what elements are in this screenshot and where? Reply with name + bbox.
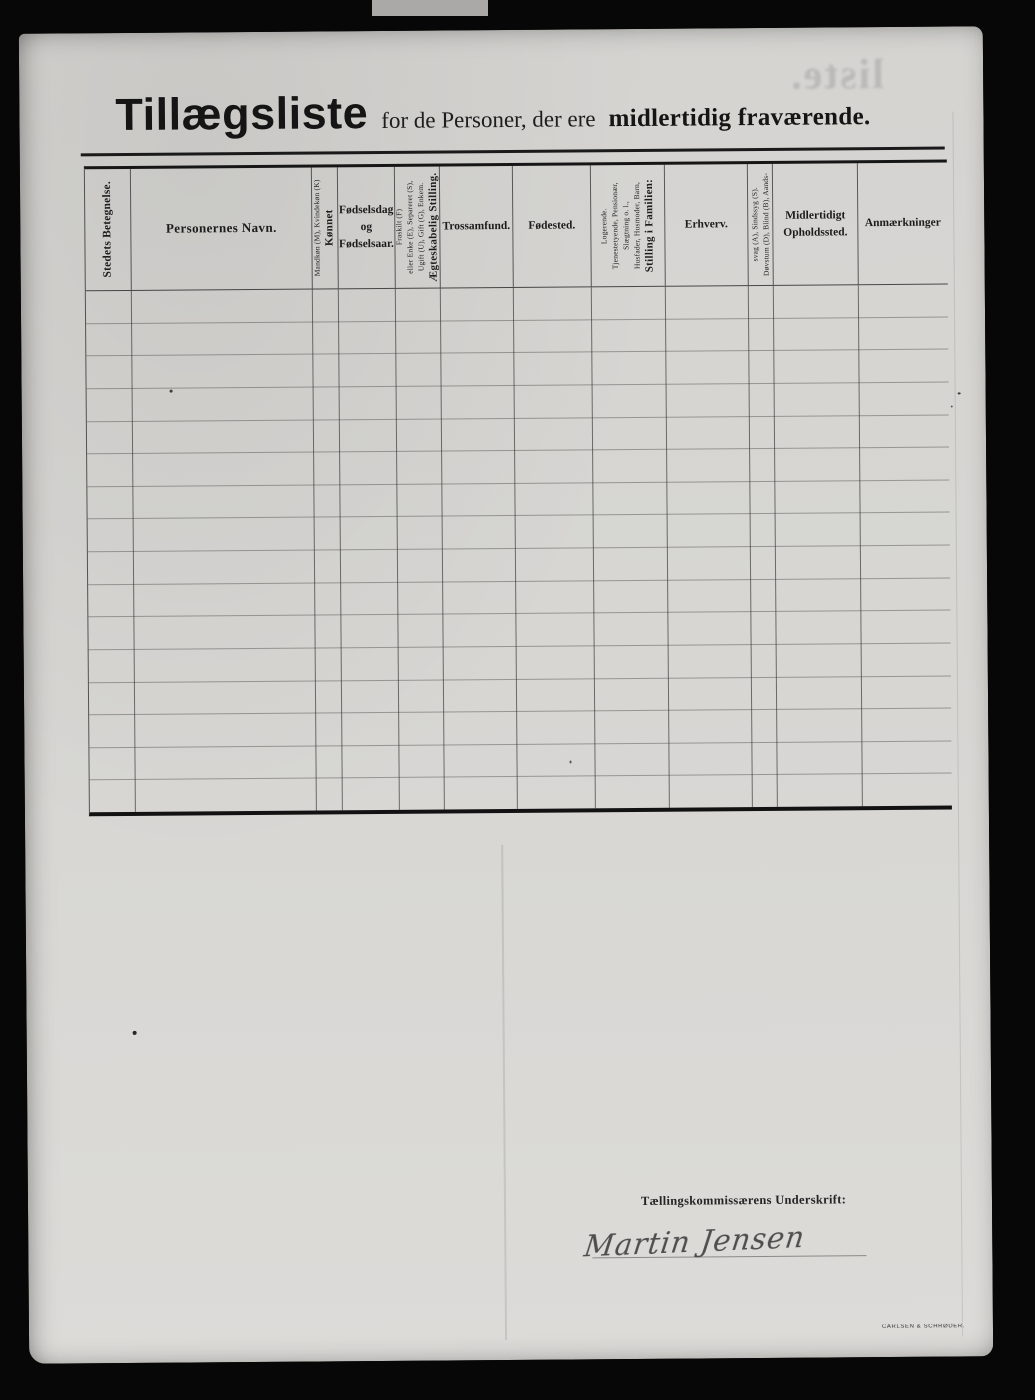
scan-background: liste. Tillægsliste for de Personer, der…	[0, 0, 1035, 1400]
signature-label: Tællingskommissærens Underskrift:	[641, 1192, 846, 1209]
col-header-trossamfund: Trossamfund.	[440, 166, 514, 288]
title-emphasis: midlertidig fraværende.	[608, 103, 870, 133]
col-header-line: Ægteskabelig Stilling.	[427, 172, 441, 281]
title-underline	[81, 147, 945, 157]
col-header-line: eller Enke (E), Separeret (S),	[405, 181, 415, 274]
table-rows	[86, 285, 952, 813]
col-header-line: svag (A), Sindssyg (S).	[750, 187, 760, 261]
col-header-line: Ugift (U), Gift (G), Enkem.	[416, 183, 426, 272]
col-header-line: Kønnet	[324, 209, 337, 246]
census-table: Stedets Betegnelse.Personernes Navn.Mand…	[84, 160, 952, 817]
col-header-koennet: Mandkøn (M), Kvindekøn (K)Kønnet	[312, 167, 339, 288]
ink-speck	[570, 760, 572, 763]
table-body	[86, 285, 952, 813]
table-header-row: Stedets Betegnelse.Personernes Navn.Mand…	[85, 163, 948, 292]
col-header-label: Fødested.	[526, 218, 577, 235]
col-header-foedselsdag-og-foedselsaar: Fødselsdag og Fødselsaar.	[338, 167, 396, 288]
ink-speck	[951, 405, 953, 407]
document-page: liste. Tillægsliste for de Personer, der…	[19, 26, 993, 1364]
ink-speck	[958, 392, 961, 394]
col-header-label: Fødselsdag og Fødselsaar.	[338, 202, 396, 252]
col-header-line: Døvstum (D), Blind (B), Aands-	[761, 173, 771, 276]
col-header-line: Mandkøn (M), Kvindekøn (K)	[312, 179, 322, 276]
col-header-erhverv: Erhverv.	[665, 164, 749, 286]
page-title: Tillægsliste for de Personer, der ere mi…	[115, 82, 955, 141]
adjacent-sheet-tab	[372, 0, 488, 16]
title-middle: for de Personer, der ere	[381, 106, 595, 134]
col-header-line: Husfader, Husmoder, Barn,	[632, 182, 642, 269]
col-header-line: Logerende.	[599, 208, 608, 244]
ink-speck	[133, 1031, 137, 1035]
col-header-label: Trossamfund.	[440, 218, 512, 235]
col-header-stilling-i-familien: Logerende.Tjenestetyende, Pensionær,Slæg…	[591, 165, 666, 287]
col-header-label: Personernes Navn.	[164, 219, 279, 239]
col-header-midlertidigt-opholdssted: Midlertidigt Opholdssted.	[773, 163, 859, 285]
col-header-line: Tjenestetyende, Pensionær,	[610, 182, 620, 269]
page-edge-line	[952, 111, 963, 1336]
col-header-label: Anmærkninger	[863, 215, 943, 232]
col-header-line: Stedets Betegnelse.	[101, 181, 116, 278]
fold-line	[501, 845, 507, 1340]
col-header-stedets-betegnelse: Stedets Betegnelse.	[85, 169, 132, 290]
printer-mark: CARLSEN & SCHRØDER.	[882, 1324, 965, 1330]
col-header-doevstum-blind-aandssvag-sindssyg: svag (A), Sindssyg (S).Døvstum (D), Blin…	[748, 164, 774, 285]
col-header-aegteskabelig-stilling: Fraskilt (F)eller Enke (E), Separeret (S…	[395, 167, 441, 288]
col-header-line: Slægtning o. l.,	[621, 201, 630, 250]
col-header-line: Fraskilt (F)	[395, 209, 404, 245]
table-row	[90, 774, 952, 812]
col-header-personernes-navn: Personernes Navn.	[131, 168, 313, 290]
col-header-label: Erhverv.	[683, 216, 730, 233]
ink-speck	[170, 390, 173, 393]
col-header-label: Midlertidigt Opholdssted.	[773, 207, 857, 241]
col-header-anmaerkninger: Anmærkninger	[858, 163, 948, 285]
col-header-line: Stilling i Familien:	[643, 179, 657, 273]
col-header-foedested: Fødested.	[513, 165, 592, 287]
title-main: Tillægsliste	[115, 87, 368, 141]
